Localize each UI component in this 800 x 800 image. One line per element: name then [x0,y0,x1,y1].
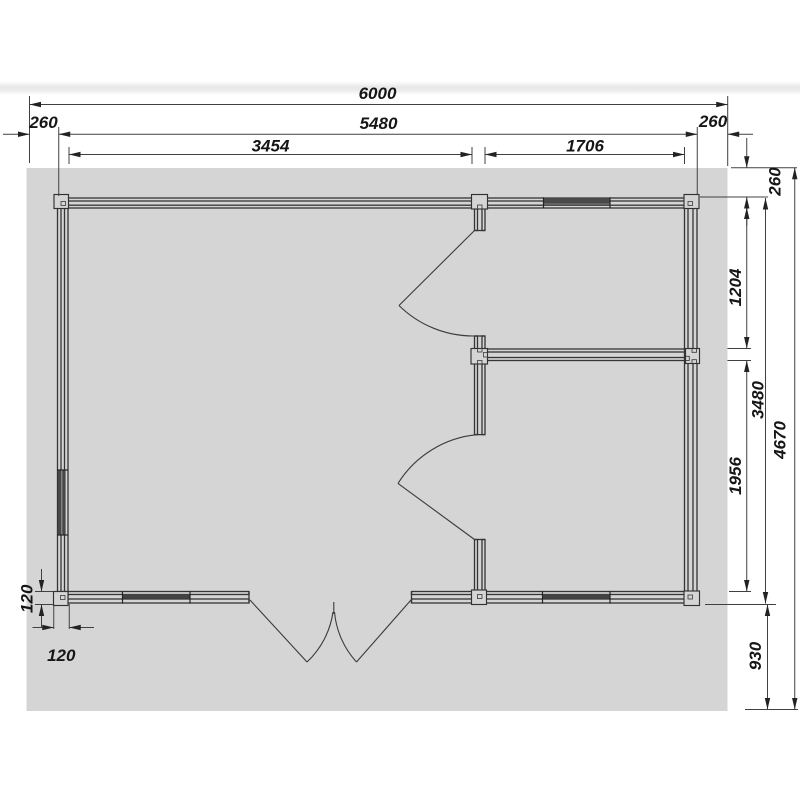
svg-text:4670: 4670 [771,421,790,460]
svg-text:120: 120 [47,646,76,665]
svg-text:260: 260 [28,113,58,132]
svg-text:260: 260 [766,167,785,197]
svg-text:120: 120 [17,584,36,613]
svg-text:3454: 3454 [252,137,290,156]
svg-text:1204: 1204 [726,268,745,306]
svg-text:1956: 1956 [726,457,745,495]
svg-text:260: 260 [698,112,728,131]
svg-text:930: 930 [746,641,765,670]
svg-text:6000: 6000 [359,84,397,103]
svg-text:3480: 3480 [749,381,768,419]
svg-text:5480: 5480 [360,114,398,133]
svg-text:1706: 1706 [566,137,604,156]
